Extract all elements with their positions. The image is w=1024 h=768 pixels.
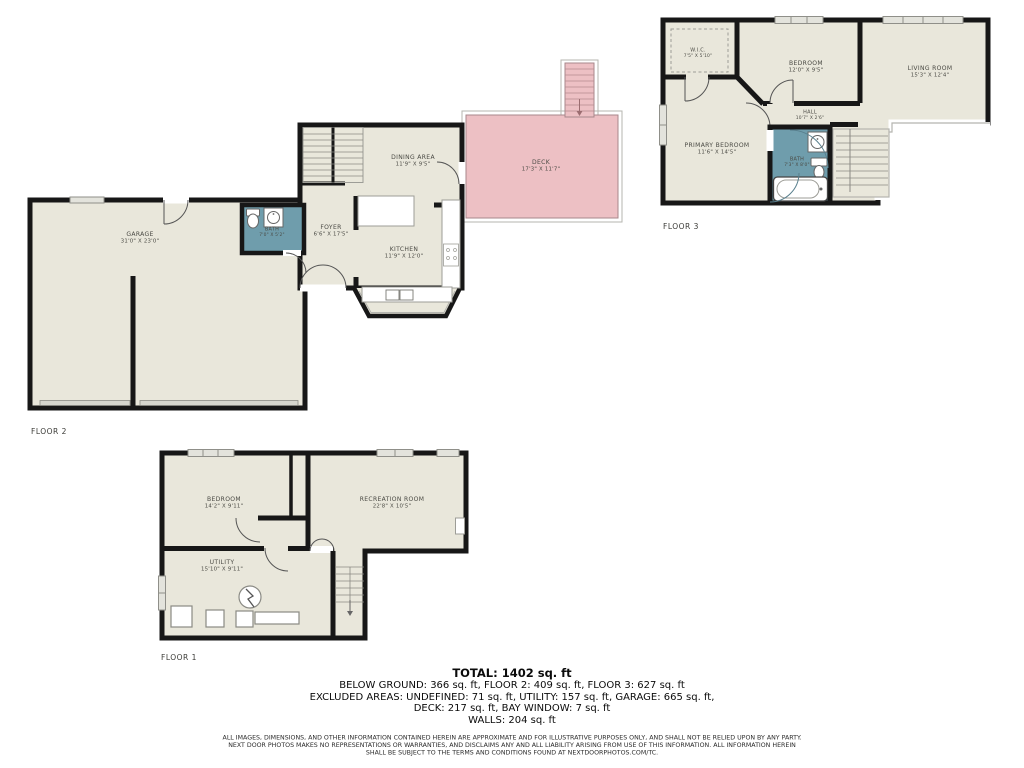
room-name: LIVING ROOM bbox=[908, 65, 953, 73]
kitchen-island bbox=[358, 196, 414, 226]
room-dims: 15'10" X 9'11" bbox=[201, 566, 243, 573]
room-name: DINING AREA bbox=[391, 154, 435, 162]
room-dims: 17'3" X 11'7" bbox=[522, 166, 560, 173]
living-open-edge-mask bbox=[876, 123, 990, 132]
appliance-fixture bbox=[206, 610, 224, 627]
faucet-dot bbox=[817, 138, 819, 140]
floor3-plan bbox=[660, 17, 991, 204]
floor1-plan bbox=[159, 450, 467, 639]
bedroom1-window bbox=[188, 450, 234, 457]
rec-wall-niche bbox=[456, 518, 465, 534]
floor2-title: FLOOR 2 bbox=[31, 427, 67, 436]
dining-label: DINING AREA 11'9" X 9'5" bbox=[391, 154, 435, 169]
floor1-bedroom-label: BEDROOM 14'2" X 9'11" bbox=[205, 496, 243, 511]
room-dims: 7'5" X 5'10" bbox=[684, 53, 712, 59]
appliance-fixture bbox=[236, 611, 253, 627]
bedroom3-window bbox=[775, 17, 823, 24]
room-name: GARAGE bbox=[121, 231, 159, 239]
foyer-label: FOYER 6'6" X 17'5" bbox=[314, 224, 349, 239]
room-dims: 11'9" X 9'5" bbox=[391, 161, 435, 168]
kitchen-sink-right bbox=[400, 290, 413, 300]
floor2-bath-label: BATH 7'0" X 5'2" bbox=[259, 226, 285, 238]
faucet-dot bbox=[273, 213, 275, 215]
living-room-label: LIVING ROOM 15'3" X 12'4" bbox=[908, 65, 953, 80]
floorplan-drawing bbox=[0, 0, 1024, 768]
area-summary: TOTAL: 1402 sq. ft BELOW GROUND: 366 sq.… bbox=[0, 666, 1024, 727]
deck-bay-areas-text: DECK: 217 sq. ft, BAY WINDOW: 7 sq. ft bbox=[0, 703, 1024, 715]
french-door-opening bbox=[310, 546, 333, 553]
room-dims: 12'0" X 9'5" bbox=[789, 67, 824, 74]
kitchen-label: KITCHEN 11'9" X 12'0" bbox=[385, 246, 423, 261]
garage-door-left bbox=[40, 401, 130, 406]
garage-door-right bbox=[140, 401, 298, 406]
entry-door-opening bbox=[300, 285, 346, 292]
room-dims: 11'9" X 12'0" bbox=[385, 253, 423, 260]
room-dims: 7'3" X 8'0" bbox=[784, 162, 810, 168]
hall-label: HALL 10'7" X 2'6" bbox=[796, 109, 824, 121]
room-name: BEDROOM bbox=[789, 60, 824, 68]
disclaimer: ALL IMAGES, DIMENSIONS, AND OTHER INFORM… bbox=[0, 734, 1024, 757]
floor3-bath-label: BATH 7'3" X 8'0" bbox=[784, 156, 810, 168]
floor3-title: FLOOR 3 bbox=[663, 222, 699, 231]
excluded-areas-text: EXCLUDED AREAS: UNDEFINED: 71 sq. ft, UT… bbox=[0, 692, 1024, 704]
recreation-room-label: RECREATION ROOM 22'8" X 10'5" bbox=[360, 496, 425, 511]
counter-fixture bbox=[255, 612, 299, 624]
bath2-door-opening bbox=[283, 250, 301, 256]
floor3-bedroom-label: BEDROOM 12'0" X 9'5" bbox=[789, 60, 824, 75]
room-name: KITCHEN bbox=[385, 246, 423, 254]
room-dims: 31'0" X 23'0" bbox=[121, 238, 159, 245]
total-area-text: TOTAL: 1402 sq. ft bbox=[0, 666, 1024, 680]
floor1-title: FLOOR 1 bbox=[161, 653, 197, 662]
floor-areas-text: BELOW GROUND: 366 sq. ft, FLOOR 2: 409 s… bbox=[0, 680, 1024, 692]
garage-window bbox=[70, 197, 104, 203]
deck-door-opening bbox=[459, 162, 466, 184]
garage-door-opening bbox=[163, 197, 189, 204]
room-dims: 7'0" X 5'2" bbox=[259, 232, 285, 238]
room-dims: 11'6" X 14'5" bbox=[685, 149, 750, 156]
room-name: FOYER bbox=[314, 224, 349, 232]
kitchen-sink-left bbox=[386, 290, 399, 300]
room-dims: 10'7" X 2'6" bbox=[796, 115, 824, 121]
tub-faucet-dot bbox=[820, 188, 823, 191]
garage-label: GARAGE 31'0" X 23'0" bbox=[121, 231, 159, 246]
bath3-door-opening bbox=[767, 130, 774, 151]
disclaimer-line-3: SHALL BE SUBJECT TO THE TERMS AND CONDIT… bbox=[0, 749, 1024, 757]
wic-label: W.I.C. 7'5" X 5'10" bbox=[684, 47, 712, 59]
room-dims: 22'8" X 10'5" bbox=[360, 503, 425, 510]
rec-window-right bbox=[437, 450, 459, 457]
room-name: PRIMARY BEDROOM bbox=[685, 142, 750, 150]
utility-label: UTILITY 15'10" X 9'11" bbox=[201, 559, 243, 574]
floor3-stairs bbox=[833, 129, 889, 197]
walls-area-text: WALLS: 204 sq. ft bbox=[0, 715, 1024, 727]
room-dims: 6'6" X 17'5" bbox=[314, 231, 349, 238]
room-name: RECREATION ROOM bbox=[360, 496, 425, 504]
appliance-fixture bbox=[171, 606, 192, 627]
primary-bedroom-label: PRIMARY BEDROOM 11'6" X 14'5" bbox=[685, 142, 750, 157]
room-name: BEDROOM bbox=[205, 496, 243, 504]
room-name: DECK bbox=[522, 159, 560, 167]
toilet-bowl-fixture bbox=[248, 214, 259, 228]
room-dims: 14'2" X 9'11" bbox=[205, 503, 243, 510]
room-name: UTILITY bbox=[201, 559, 243, 567]
deck-label: DECK 17'3" X 11'7" bbox=[522, 159, 560, 174]
floorplan-page: GARAGE 31'0" X 23'0" BATH 7'0" X 5'2" FO… bbox=[0, 0, 1024, 768]
room-dims: 15'3" X 12'4" bbox=[908, 72, 953, 79]
toilet-fixture bbox=[811, 158, 827, 166]
water-heater-fixture bbox=[239, 586, 261, 608]
